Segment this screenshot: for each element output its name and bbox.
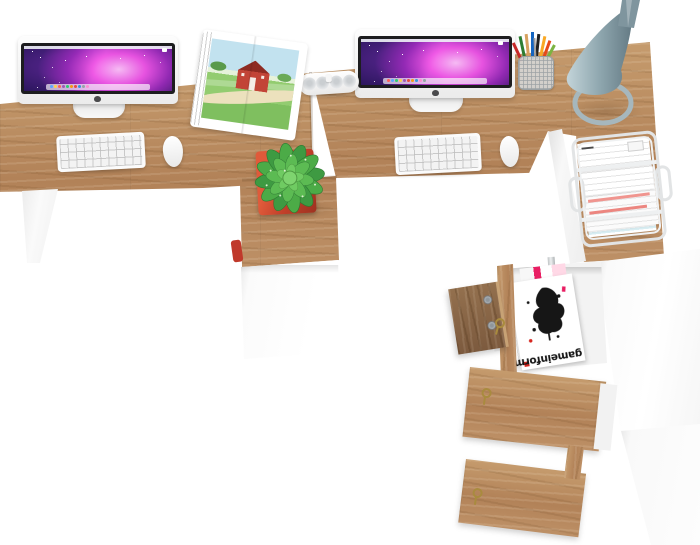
bookcase-side-panel bbox=[621, 424, 700, 545]
dock-icon bbox=[399, 79, 402, 82]
keyboard-keys bbox=[397, 136, 479, 172]
barn-window bbox=[241, 73, 244, 76]
dock-icon bbox=[403, 79, 406, 82]
magazine-cover-art bbox=[515, 278, 576, 347]
imac-display-frame bbox=[358, 36, 512, 88]
key-ring bbox=[472, 487, 483, 498]
left-desk-leg bbox=[22, 189, 58, 263]
keyboard-right bbox=[394, 133, 482, 175]
dock-icon bbox=[423, 79, 426, 82]
dock-icon bbox=[50, 85, 53, 88]
pill-speaker bbox=[298, 70, 359, 96]
speaker-grille-icon bbox=[342, 74, 356, 88]
workstation-top-view-render: gameinformer bbox=[0, 0, 700, 545]
desktop-widget-icon bbox=[162, 48, 167, 52]
imac-body bbox=[18, 36, 178, 104]
dock-icon bbox=[415, 79, 418, 82]
red-barn bbox=[235, 58, 271, 92]
wire-letter-tray bbox=[570, 130, 667, 248]
imac-left bbox=[18, 36, 178, 104]
dock bbox=[383, 78, 487, 84]
cabinet-wood-door-1 bbox=[462, 367, 606, 451]
imac-body bbox=[355, 29, 515, 98]
key-ring bbox=[481, 387, 492, 398]
dock bbox=[46, 84, 150, 90]
cabinet-top-shadow bbox=[241, 265, 341, 273]
menu-bar bbox=[24, 46, 172, 49]
dock-icon bbox=[82, 85, 85, 88]
dock-icon bbox=[391, 79, 394, 82]
keyboard-keys bbox=[59, 135, 142, 169]
tray-wire-frame-inner bbox=[576, 135, 662, 240]
path bbox=[201, 88, 299, 105]
imac-right bbox=[355, 29, 515, 98]
dock-icon bbox=[62, 85, 65, 88]
dock-icon bbox=[407, 79, 410, 82]
tree bbox=[210, 60, 227, 71]
apple-logo-icon bbox=[94, 96, 101, 102]
dock-icon bbox=[78, 85, 81, 88]
open-picture-book bbox=[190, 29, 309, 141]
dock-icon bbox=[58, 85, 61, 88]
imac-screen bbox=[24, 46, 172, 91]
key-stem bbox=[474, 496, 477, 505]
imac-screen bbox=[361, 39, 509, 85]
apple-logo-icon bbox=[432, 90, 439, 96]
dock-icon bbox=[411, 79, 414, 82]
barn-window bbox=[261, 76, 264, 79]
door-hinge-icon bbox=[483, 295, 493, 305]
dock-icon bbox=[66, 85, 69, 88]
speaker-button bbox=[325, 74, 332, 82]
desktop-widget-icon bbox=[498, 41, 503, 45]
menu-bar bbox=[361, 39, 509, 42]
dock-icon bbox=[86, 85, 89, 88]
dock-icon bbox=[387, 79, 390, 82]
return-drawer-cabinet bbox=[241, 260, 341, 359]
speaker-grille-icon bbox=[303, 77, 317, 91]
key-stem bbox=[483, 396, 486, 405]
plant-foliage bbox=[236, 126, 344, 232]
dock-icon bbox=[395, 79, 398, 82]
imac-display-frame bbox=[21, 43, 175, 94]
tree bbox=[277, 73, 292, 83]
dock-icon bbox=[70, 85, 73, 88]
dock-icon bbox=[419, 79, 422, 82]
dock-icon bbox=[54, 85, 57, 88]
wallpaper-stars bbox=[369, 45, 370, 46]
dock-icon bbox=[74, 85, 77, 88]
keyboard-left bbox=[56, 132, 146, 173]
wallpaper-stars bbox=[32, 51, 33, 52]
magazine-cover: gameinformer bbox=[508, 273, 586, 370]
designer-lamp bbox=[548, 0, 658, 130]
